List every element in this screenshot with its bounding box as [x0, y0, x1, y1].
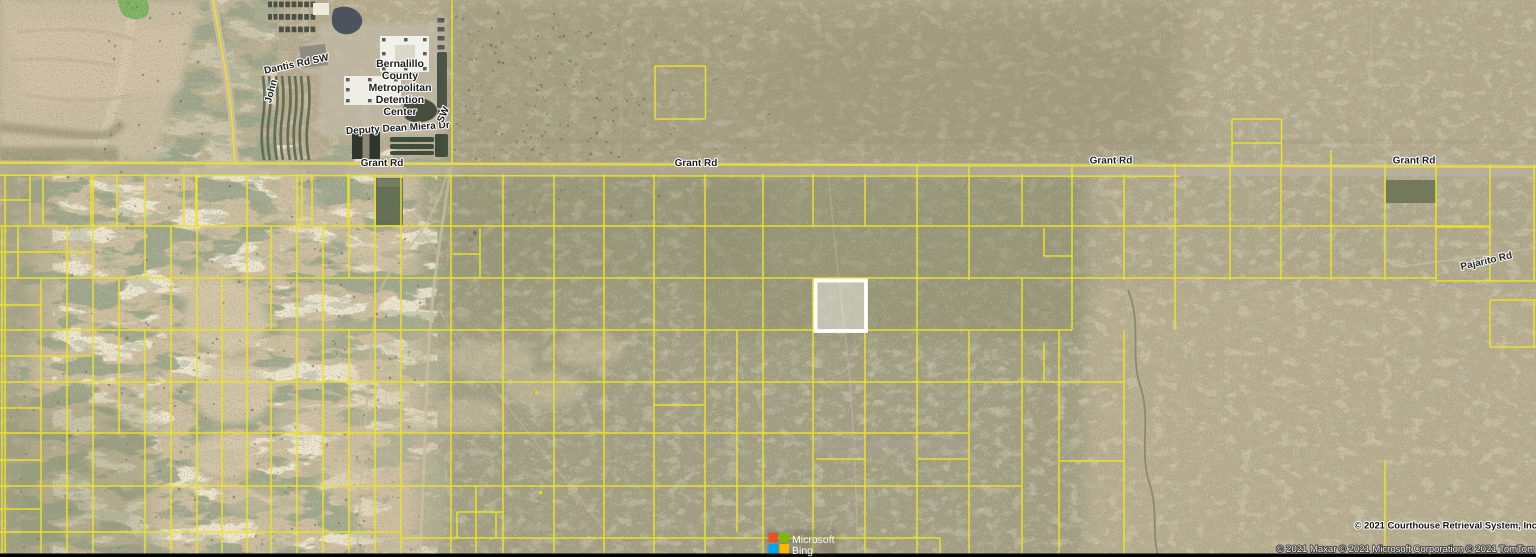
svg-text:Grant Rd: Grant Rd [1090, 156, 1133, 167]
svg-text:© 2021 Courthouse Retrieval Sy: © 2021 Courthouse Retrieval System, Inc [1355, 520, 1536, 531]
svg-text:Bernalillo: Bernalillo [376, 58, 424, 70]
svg-text:Grant Rd: Grant Rd [675, 158, 718, 169]
svg-text:© 2021 Maxar © 2021 Microsoft: © 2021 Maxar © 2021 Microsoft Corporatio… [1277, 544, 1536, 555]
svg-text:County: County [382, 70, 418, 82]
svg-text:Grant Rd: Grant Rd [361, 158, 404, 169]
svg-text:Bing: Bing [792, 545, 813, 557]
svg-text:Grant Rd: Grant Rd [1393, 156, 1436, 167]
svg-text:Center: Center [383, 106, 416, 118]
svg-text:Metropolitan: Metropolitan [369, 82, 432, 94]
svg-text:Detention: Detention [376, 94, 424, 106]
